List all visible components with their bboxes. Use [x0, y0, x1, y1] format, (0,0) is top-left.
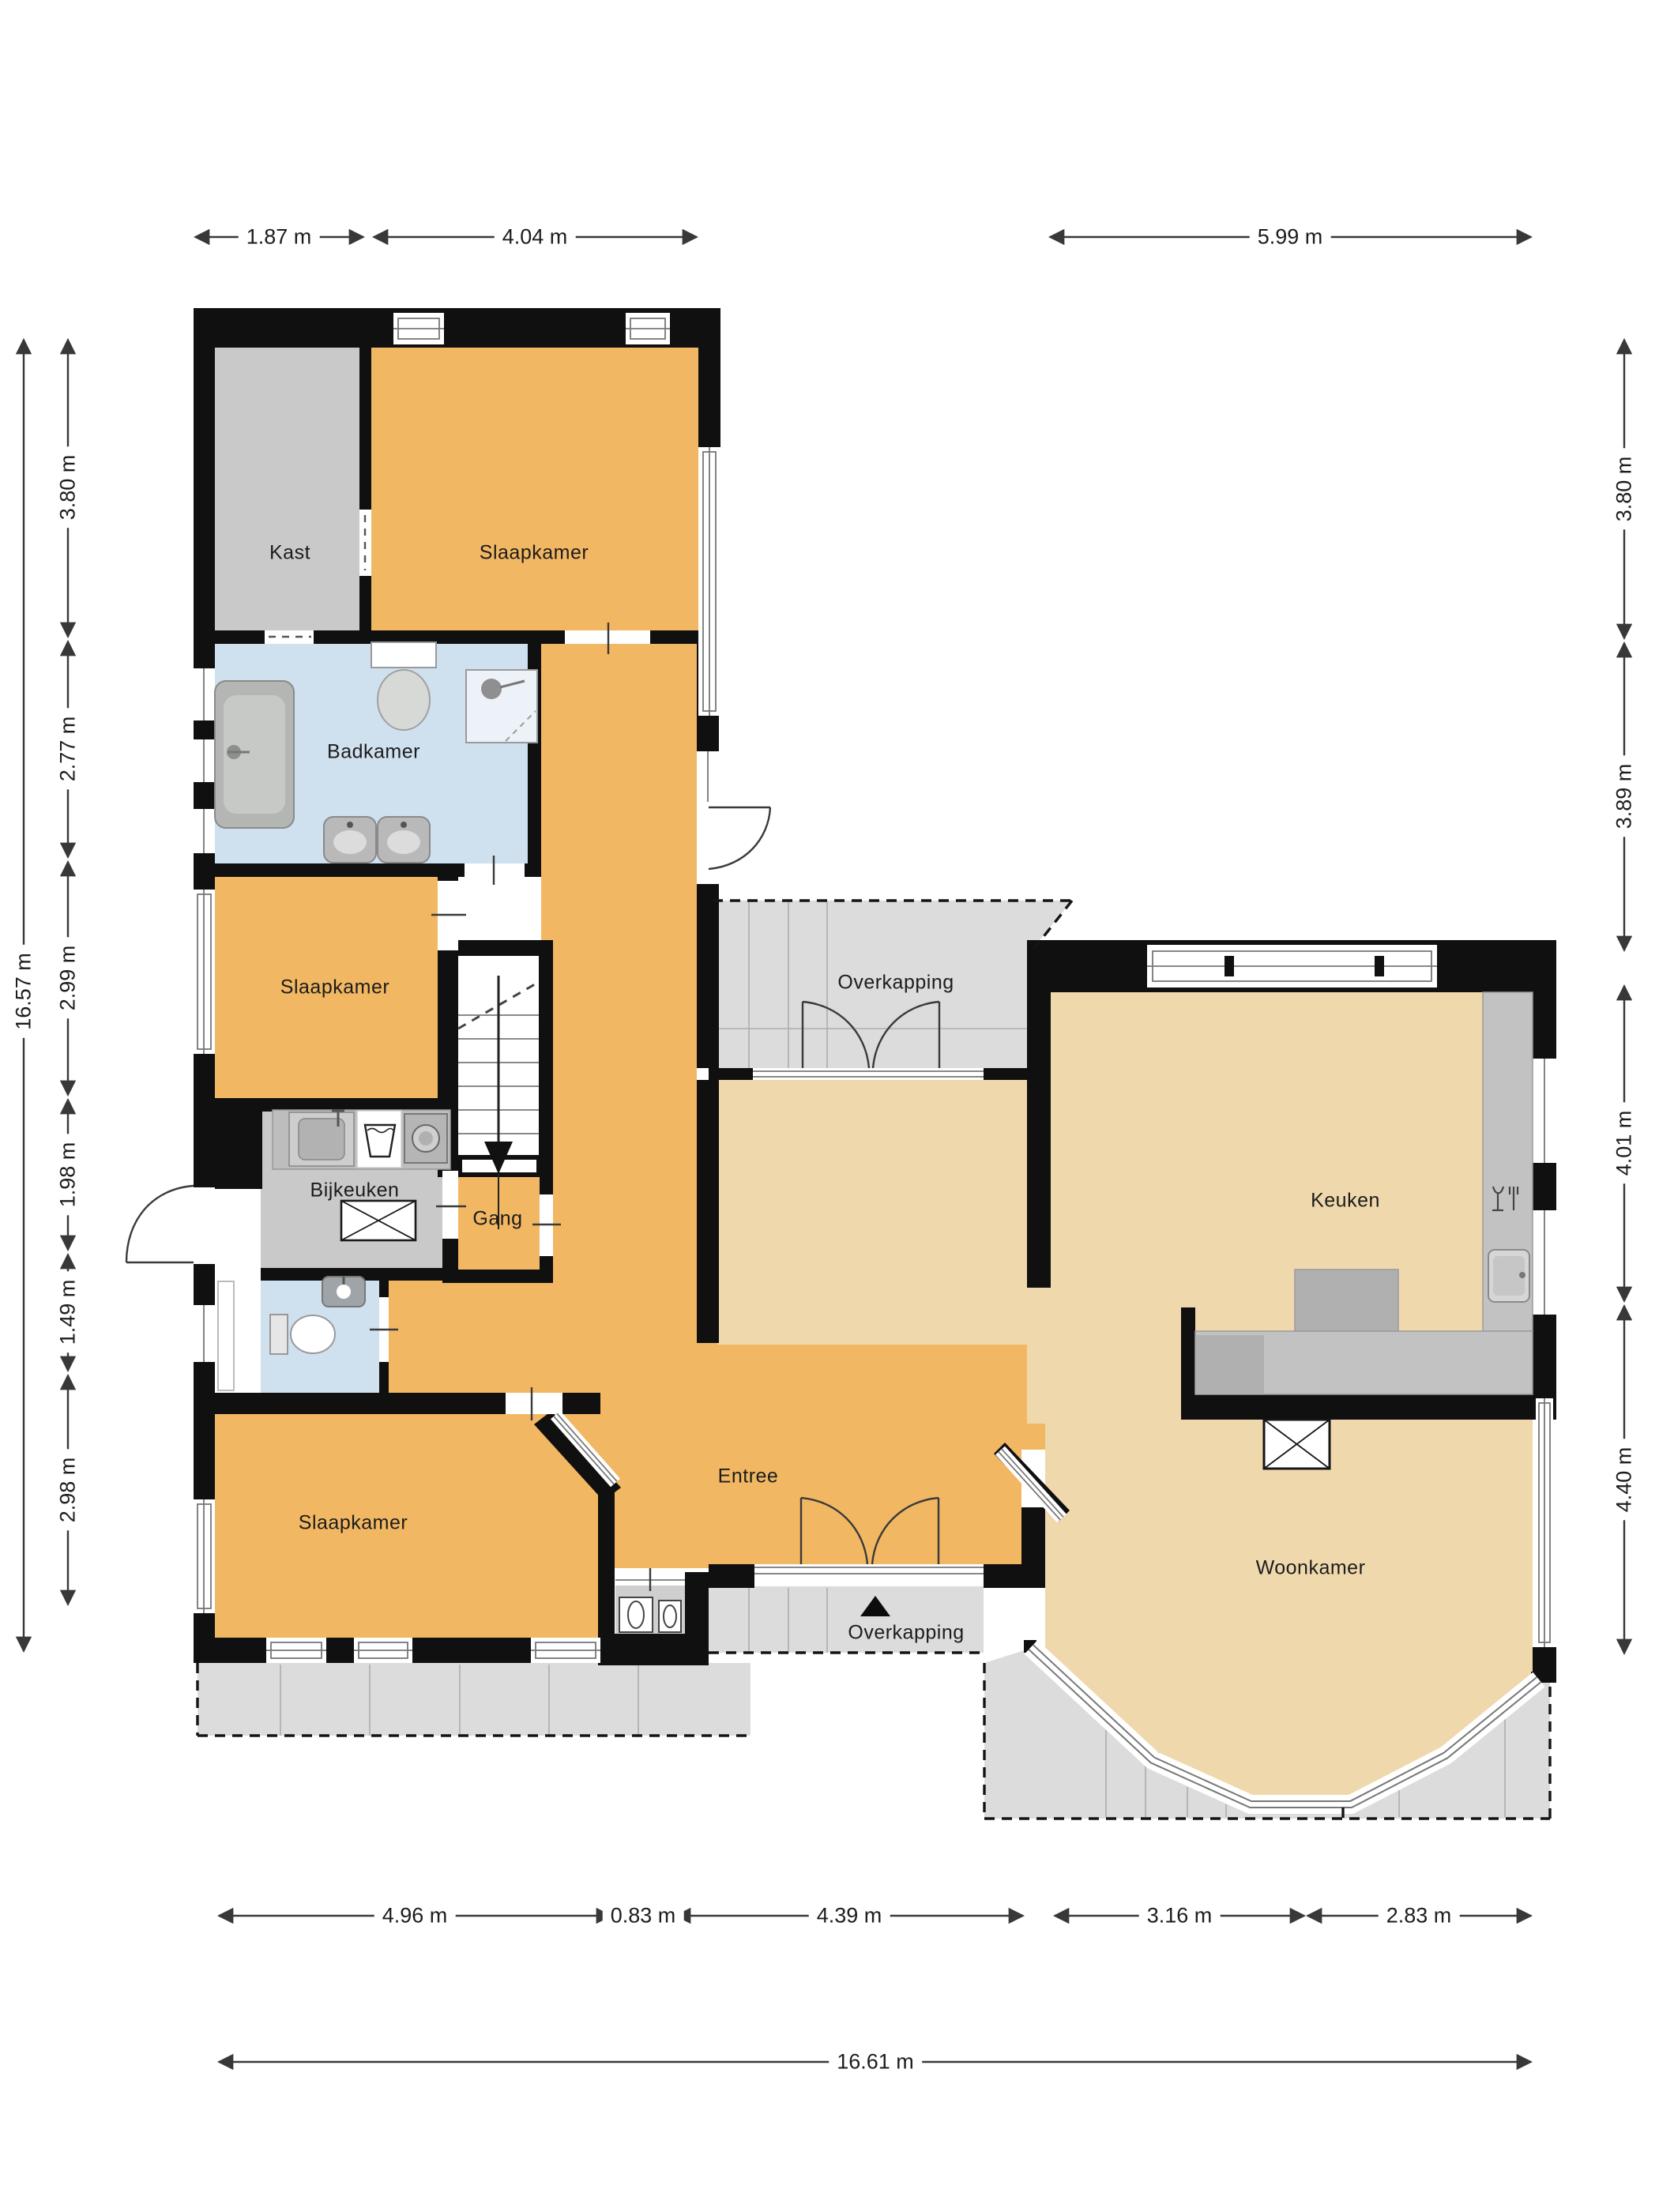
dim-left-6: 2.98 m — [56, 1450, 81, 1531]
dim-top-3: 5.99 m — [1250, 225, 1331, 250]
dim-left-5: 1.49 m — [56, 1272, 81, 1353]
dim-bottom-4: 3.16 m — [1139, 1904, 1221, 1928]
dim-bottom-2: 0.83 m — [603, 1904, 684, 1928]
shower — [466, 670, 537, 743]
dim-left-3: 2.99 m — [56, 938, 81, 1019]
niche-fixtures — [619, 1597, 681, 1632]
dim-bottom-5: 2.83 m — [1379, 1904, 1460, 1928]
dim-right-4: 4.40 m — [1612, 1439, 1637, 1521]
room-label-keuken: Keuken — [1311, 1190, 1380, 1213]
room-label-gang: Gang — [472, 1208, 522, 1231]
dim-left-1: 3.80 m — [56, 447, 81, 529]
dim-top-2: 4.04 m — [495, 225, 576, 250]
floor-plan-page: Kast Slaapkamer Badkamer Slaapkamer Bijk… — [0, 0, 1659, 2212]
washbasin — [322, 1277, 365, 1307]
dim-left-2: 2.77 m — [56, 709, 81, 790]
dim-bottom-total: 16.61 m — [829, 2050, 922, 2075]
dim-right-1: 3.80 m — [1612, 449, 1637, 530]
duct-x-box — [1264, 1420, 1330, 1469]
room-label-slaapkamer-top: Slaapkamer — [480, 542, 589, 565]
room-label-badkamer: Badkamer — [327, 741, 420, 764]
room-label-bijkeuken: Bijkeuken — [310, 1179, 400, 1202]
dim-left-total: 16.57 m — [12, 945, 36, 1038]
washbasin — [324, 817, 376, 863]
freezer-x-table — [341, 1201, 416, 1240]
toilet — [270, 1315, 335, 1354]
washbasin — [378, 817, 430, 863]
dim-right-3: 4.01 m — [1612, 1103, 1637, 1184]
floor-plan-drawing — [0, 0, 1659, 2212]
dim-bottom-1: 4.96 m — [374, 1904, 456, 1928]
room-label-overkapping-top: Overkapping — [837, 972, 954, 995]
dim-left-4: 1.98 m — [56, 1134, 81, 1216]
dim-right-2: 3.89 m — [1612, 756, 1637, 837]
room-label-slaapkamer-bottom: Slaapkamer — [299, 1512, 408, 1535]
laundry-basket-icon — [357, 1111, 401, 1168]
dim-top-1: 1.87 m — [239, 225, 320, 250]
washing-machine — [404, 1114, 447, 1163]
room-label-woonkamer: Woonkamer — [1256, 1557, 1366, 1580]
room-label-entree: Entree — [718, 1465, 779, 1488]
room-label-overkapping-bottom: Overkapping — [848, 1622, 964, 1645]
kitchen-sink — [1488, 1250, 1529, 1302]
bathtub — [215, 681, 294, 828]
room-label-kast: Kast — [269, 542, 310, 565]
dim-bottom-3: 4.39 m — [809, 1904, 890, 1928]
room-label-slaapkamer-mid: Slaapkamer — [280, 976, 389, 999]
